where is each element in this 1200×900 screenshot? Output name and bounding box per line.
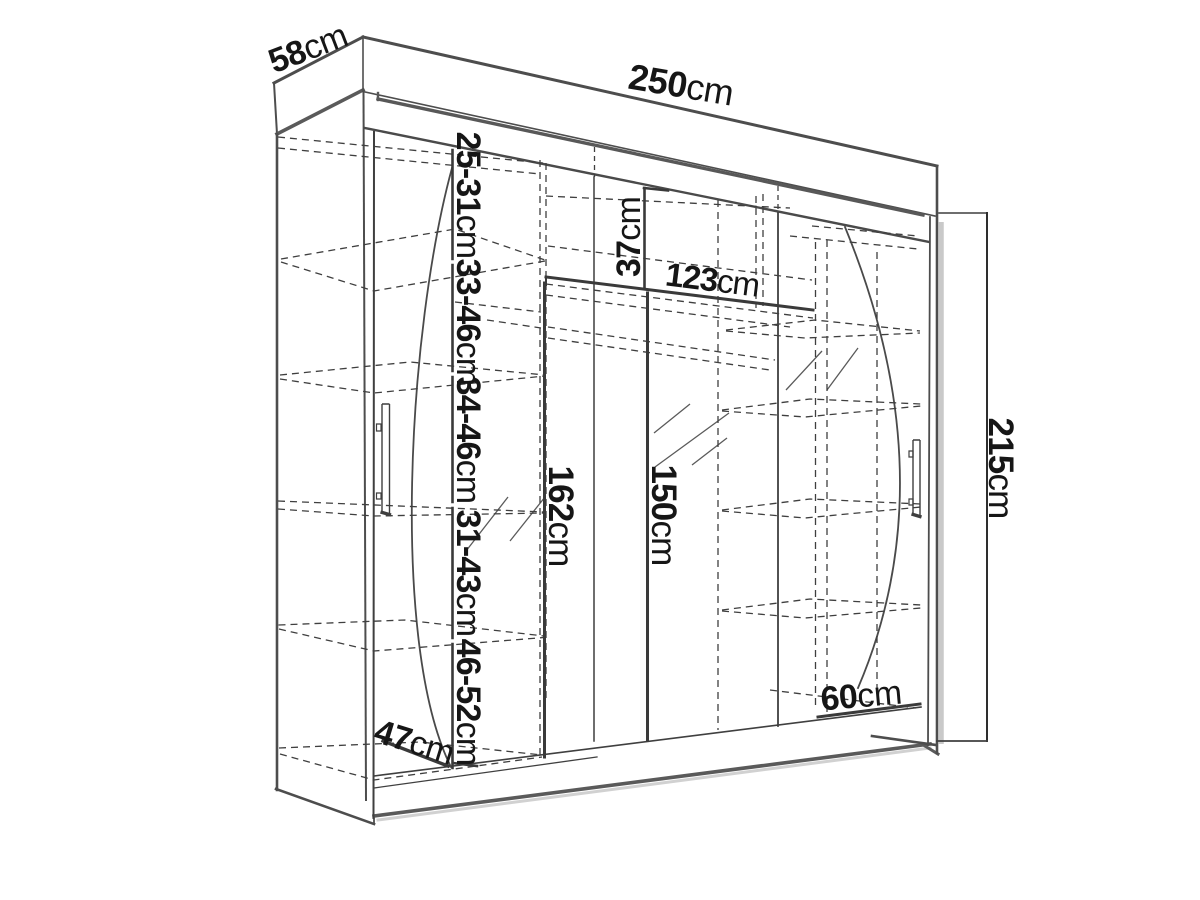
- svg-text:60cm: 60cm: [819, 674, 903, 719]
- svg-text:162cm: 162cm: [541, 465, 580, 566]
- svg-text:25-31cm: 25-31cm: [449, 132, 487, 259]
- svg-text:215cm: 215cm: [981, 417, 1020, 518]
- svg-text:37cm: 37cm: [610, 197, 648, 277]
- svg-text:34-46cm: 34-46cm: [449, 377, 487, 504]
- svg-text:31-43cm: 31-43cm: [449, 510, 487, 637]
- svg-text:33-46cm: 33-46cm: [449, 259, 487, 386]
- svg-text:150cm: 150cm: [644, 464, 683, 565]
